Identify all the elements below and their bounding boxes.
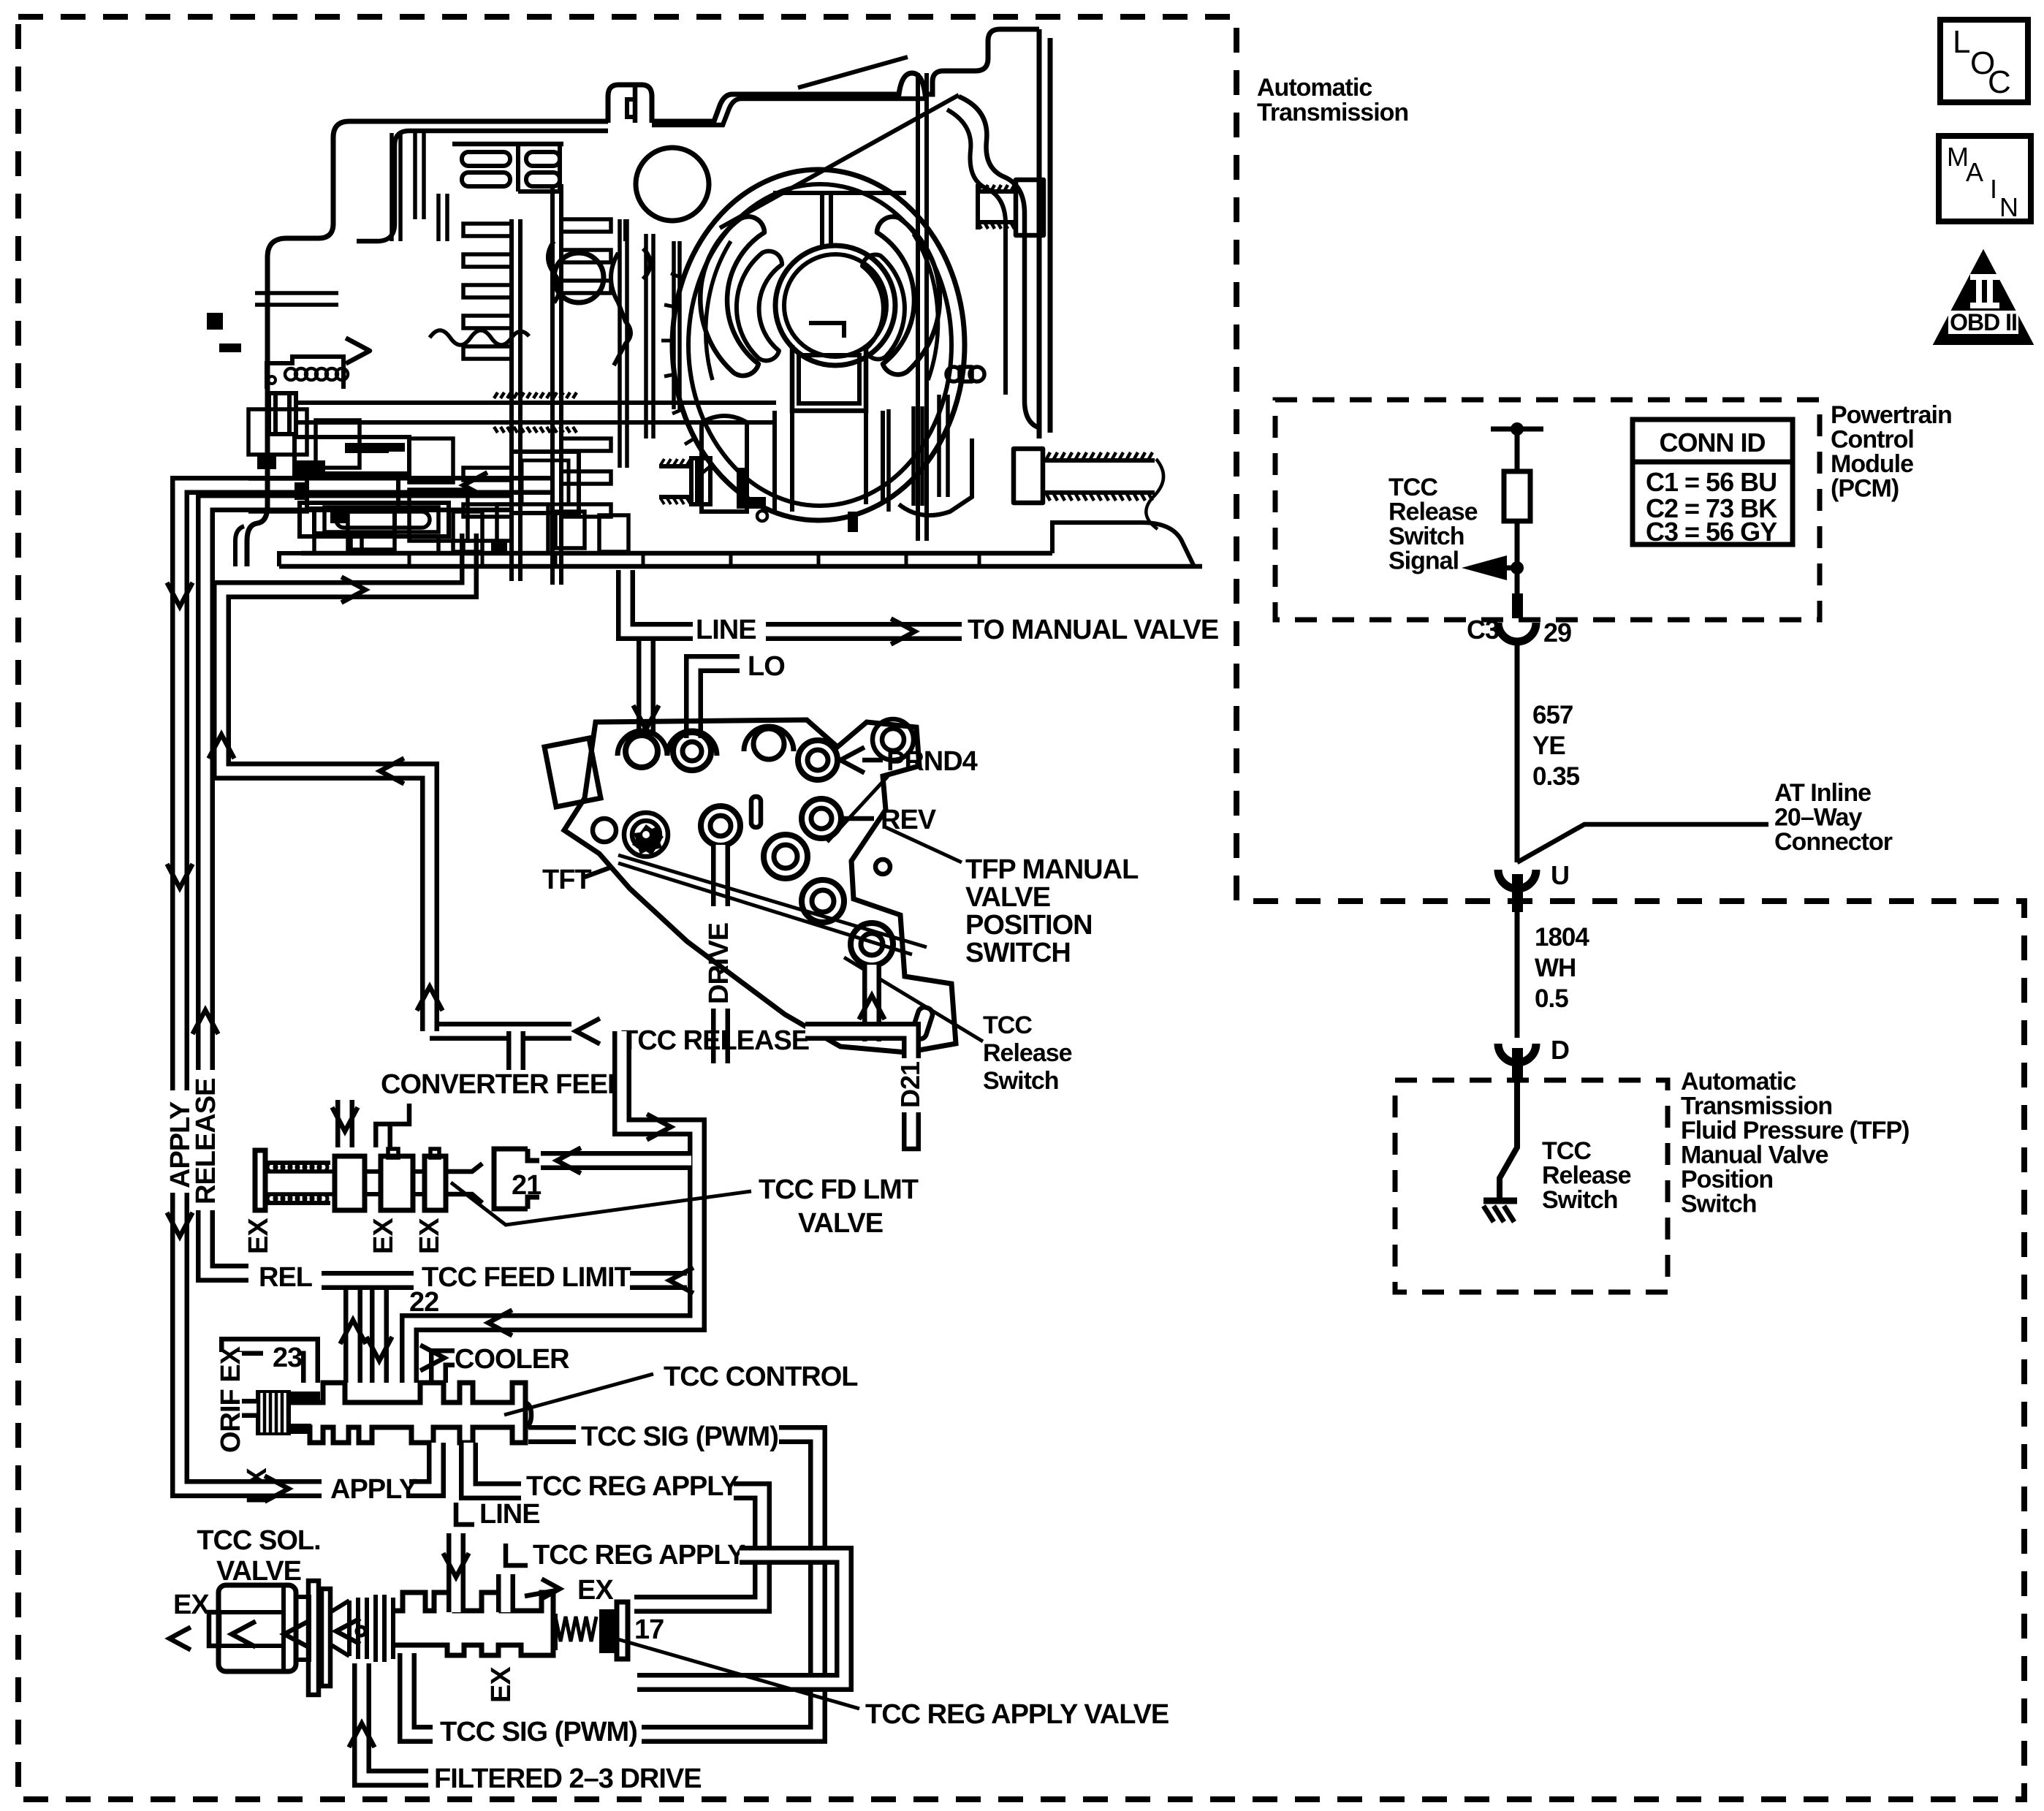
svg-text:COOLER: COOLER <box>455 1344 569 1375</box>
svg-text:23: 23 <box>273 1343 302 1373</box>
svg-text:22: 22 <box>409 1287 438 1318</box>
svg-text:TCC: TCC <box>1542 1137 1591 1165</box>
svg-text:VALVE: VALVE <box>798 1208 883 1239</box>
svg-text:ORIF EX: ORIF EX <box>216 1345 246 1453</box>
svg-text:U: U <box>1551 860 1569 890</box>
svg-text:LINE: LINE <box>479 1499 540 1530</box>
svg-text:I: I <box>1990 174 1996 204</box>
svg-text:TFT: TFT <box>542 865 591 895</box>
svg-text:0.35: 0.35 <box>1532 762 1580 791</box>
svg-text:TCC REG APPLY: TCC REG APPLY <box>533 1540 745 1571</box>
svg-text:C: C <box>1988 64 2010 100</box>
svg-text:L: L <box>1953 24 1970 60</box>
svg-text:A: A <box>1966 157 1983 187</box>
svg-text:RELEASE: RELEASE <box>191 1079 221 1204</box>
svg-text:LINE: LINE <box>696 615 756 645</box>
svg-text:DRIVE: DRIVE <box>704 923 734 1004</box>
svg-text:TCC FD LMT: TCC FD LMT <box>759 1174 919 1205</box>
svg-text:WH: WH <box>1535 954 1576 982</box>
svg-text:1804: 1804 <box>1535 923 1589 952</box>
svg-text:Transmission: Transmission <box>1681 1093 1832 1120</box>
svg-text:Signal: Signal <box>1388 547 1459 575</box>
svg-text:EX: EX <box>173 1590 210 1620</box>
svg-text:TCC REG APPLY VALVE: TCC REG APPLY VALVE <box>865 1699 1169 1730</box>
svg-text:TCC RELEASE: TCC RELEASE <box>621 1025 809 1056</box>
svg-text:TO MANUAL VALVE: TO MANUAL VALVE <box>968 615 1218 645</box>
svg-text:657: 657 <box>1532 701 1573 729</box>
svg-text:Switch: Switch <box>1388 523 1464 550</box>
svg-text:VALVE: VALVE <box>216 1556 301 1587</box>
svg-text:TCC: TCC <box>983 1011 1032 1039</box>
svg-text:N: N <box>1999 192 2018 222</box>
svg-text:EX: EX <box>414 1218 445 1254</box>
svg-text:Transmission: Transmission <box>1257 99 1408 126</box>
svg-text:TCC CONTROL: TCC CONTROL <box>664 1362 858 1392</box>
svg-text:C1 = 56 BU: C1 = 56 BU <box>1646 467 1777 497</box>
svg-text:EX: EX <box>243 1218 274 1254</box>
svg-text:TCC SIG (PWM): TCC SIG (PWM) <box>581 1421 778 1452</box>
svg-text:EX: EX <box>577 1575 614 1606</box>
svg-text:M: M <box>1947 142 1968 172</box>
svg-text:D: D <box>1551 1035 1569 1065</box>
svg-text:REL: REL <box>259 1262 313 1293</box>
svg-text:Switch: Switch <box>983 1067 1059 1095</box>
svg-text:0.5: 0.5 <box>1535 984 1568 1013</box>
svg-text:Automatic: Automatic <box>1681 1068 1796 1096</box>
svg-text:21: 21 <box>512 1170 542 1201</box>
svg-text:Module: Module <box>1831 450 1913 478</box>
svg-text:Switch: Switch <box>1542 1186 1618 1214</box>
svg-text:PRND4: PRND4 <box>886 746 978 777</box>
svg-text:D21: D21 <box>895 1061 925 1108</box>
svg-text:Release: Release <box>1388 498 1478 526</box>
svg-text:Powertrain: Powertrain <box>1831 401 1952 429</box>
svg-text:TCC: TCC <box>1388 474 1437 501</box>
svg-text:TCC FEED LIMIT: TCC FEED LIMIT <box>422 1262 631 1293</box>
svg-text:C3: C3 <box>1467 615 1499 645</box>
svg-text:TCC SIG (PWM): TCC SIG (PWM) <box>440 1717 637 1747</box>
svg-text:Fluid Pressure (TFP): Fluid Pressure (TFP) <box>1681 1117 1910 1144</box>
svg-text:CONN ID: CONN ID <box>1660 428 1766 458</box>
svg-text:APPLY: APPLY <box>330 1474 417 1505</box>
svg-text:17: 17 <box>634 1614 664 1645</box>
svg-text:TFP MANUAL: TFP MANUAL <box>965 854 1139 885</box>
svg-text:Automatic: Automatic <box>1257 74 1372 102</box>
svg-text:C3 = 56 GY: C3 = 56 GY <box>1646 517 1777 547</box>
svg-text:LO: LO <box>748 651 785 682</box>
svg-text:20–Way: 20–Way <box>1774 804 1862 832</box>
svg-text:Position: Position <box>1681 1166 1773 1193</box>
svg-text:TCC SOL.: TCC SOL. <box>197 1525 320 1556</box>
svg-text:Release: Release <box>1542 1162 1631 1190</box>
svg-text:29: 29 <box>1543 618 1571 648</box>
svg-text:Release: Release <box>983 1039 1072 1067</box>
svg-text:AT Inline: AT Inline <box>1774 779 1871 807</box>
svg-text:CONVERTER FEED: CONVERTER FEED <box>381 1069 626 1100</box>
svg-text:FILTERED 2–3 DRIVE: FILTERED 2–3 DRIVE <box>434 1763 702 1794</box>
svg-text:Switch: Switch <box>1681 1191 1757 1218</box>
svg-text:SWITCH: SWITCH <box>965 938 1071 968</box>
svg-text:YE: YE <box>1532 732 1565 760</box>
svg-text:POSITION: POSITION <box>965 910 1093 941</box>
svg-text:EX: EX <box>486 1666 517 1703</box>
svg-text:VALVE: VALVE <box>965 882 1050 913</box>
svg-text:OBD II: OBD II <box>1950 309 2017 335</box>
svg-text:Manual Valve: Manual Valve <box>1681 1142 1828 1169</box>
svg-text:TCC REG APPLY: TCC REG APPLY <box>526 1471 739 1502</box>
svg-text:EX: EX <box>368 1218 399 1254</box>
svg-text:Control: Control <box>1831 426 1914 454</box>
svg-text:Connector: Connector <box>1774 828 1893 856</box>
svg-text:(PCM): (PCM) <box>1831 475 1899 503</box>
